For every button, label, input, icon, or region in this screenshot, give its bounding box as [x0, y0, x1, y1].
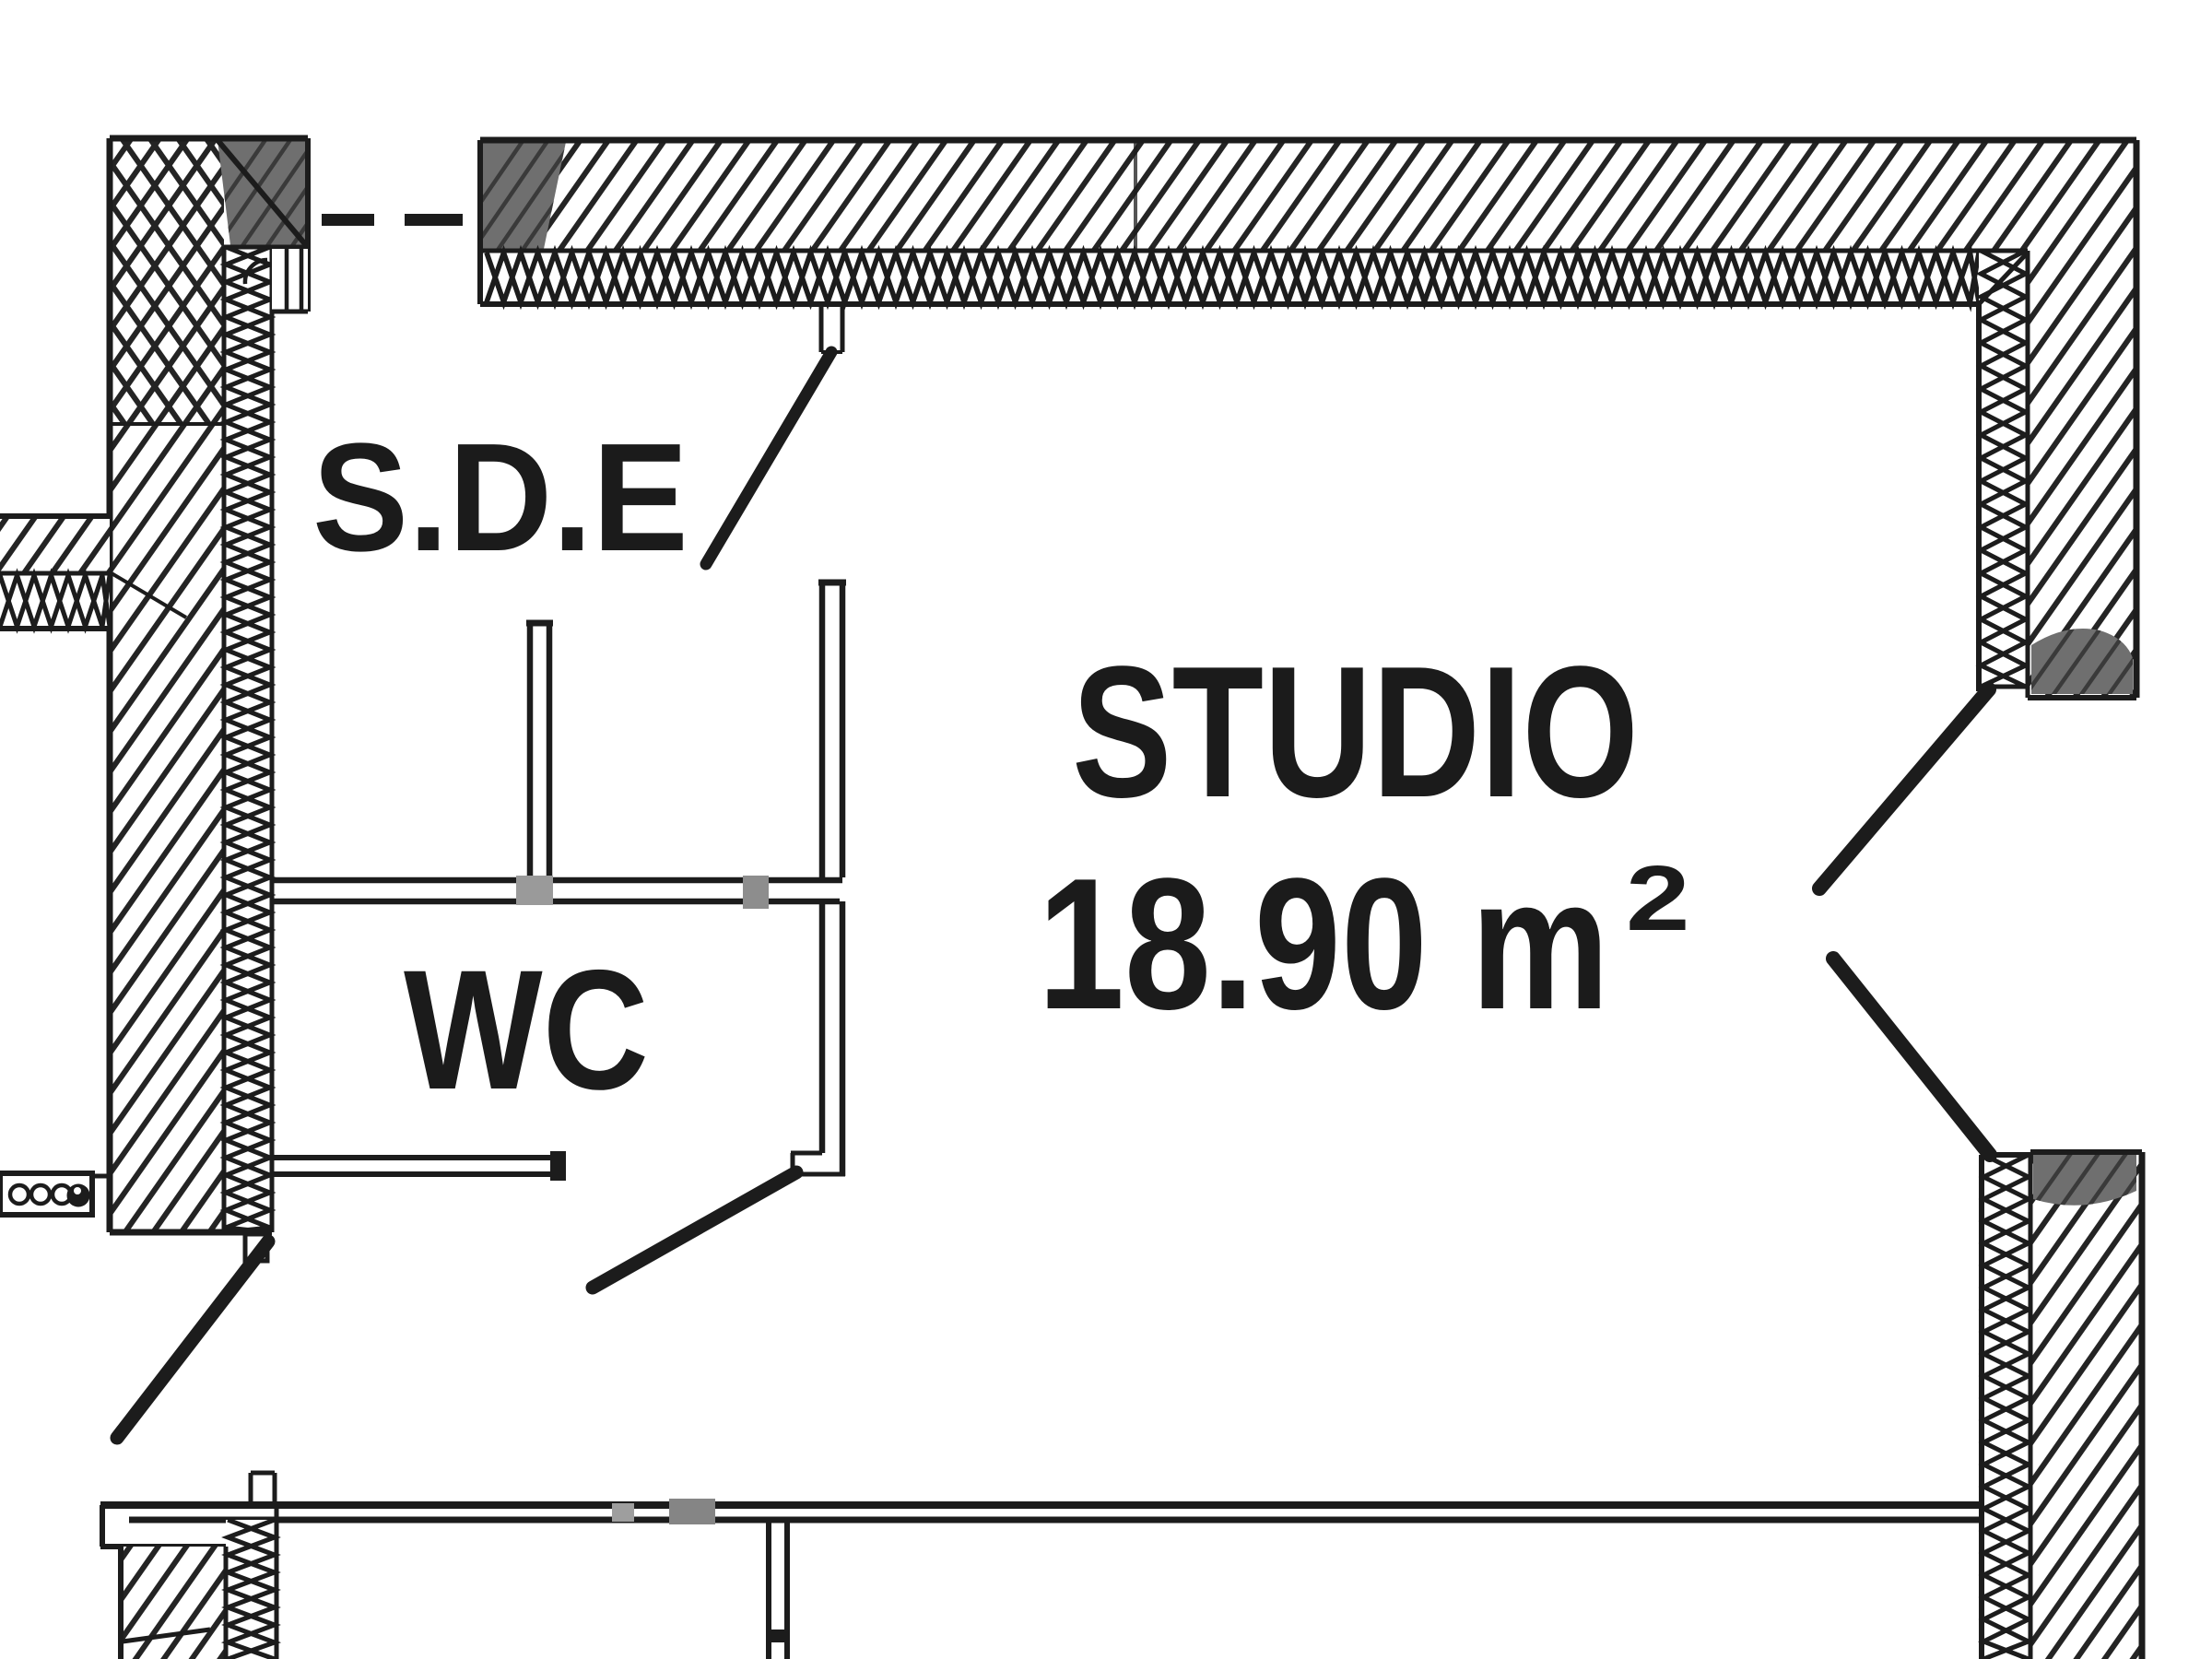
svg-text:S.D.E: S.D.E	[312, 412, 688, 583]
svg-text:2: 2	[1626, 847, 1690, 949]
svg-text:WC: WC	[404, 935, 649, 1125]
svg-text:18.90 m: 18.90 m	[1038, 839, 1609, 1048]
svg-text:STUDIO: STUDIO	[1072, 627, 1639, 836]
